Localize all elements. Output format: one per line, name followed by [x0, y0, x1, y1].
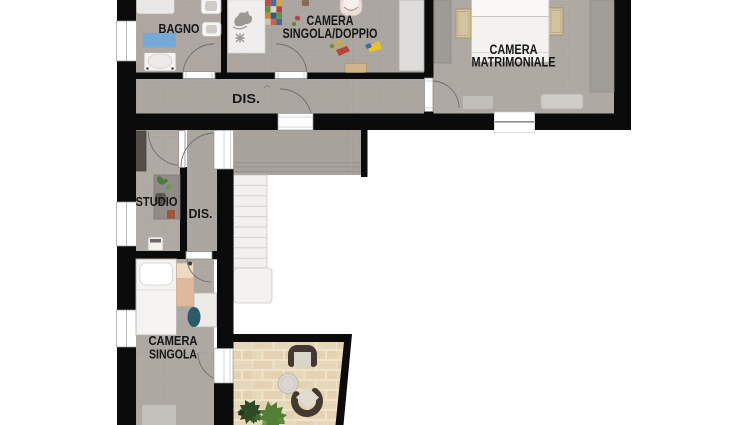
svg-text:STUDIO: STUDIO [136, 194, 178, 209]
svg-text:DIS.: DIS. [232, 91, 260, 106]
svg-text:SINGOLA: SINGOLA [149, 347, 197, 362]
svg-text:DIS.: DIS. [189, 206, 213, 221]
svg-text:SINGOLA/DOPPIO: SINGOLA/DOPPIO [283, 26, 378, 41]
svg-text:MATRIMONIALE: MATRIMONIALE [472, 55, 556, 70]
svg-text:BAGNO: BAGNO [159, 21, 200, 36]
